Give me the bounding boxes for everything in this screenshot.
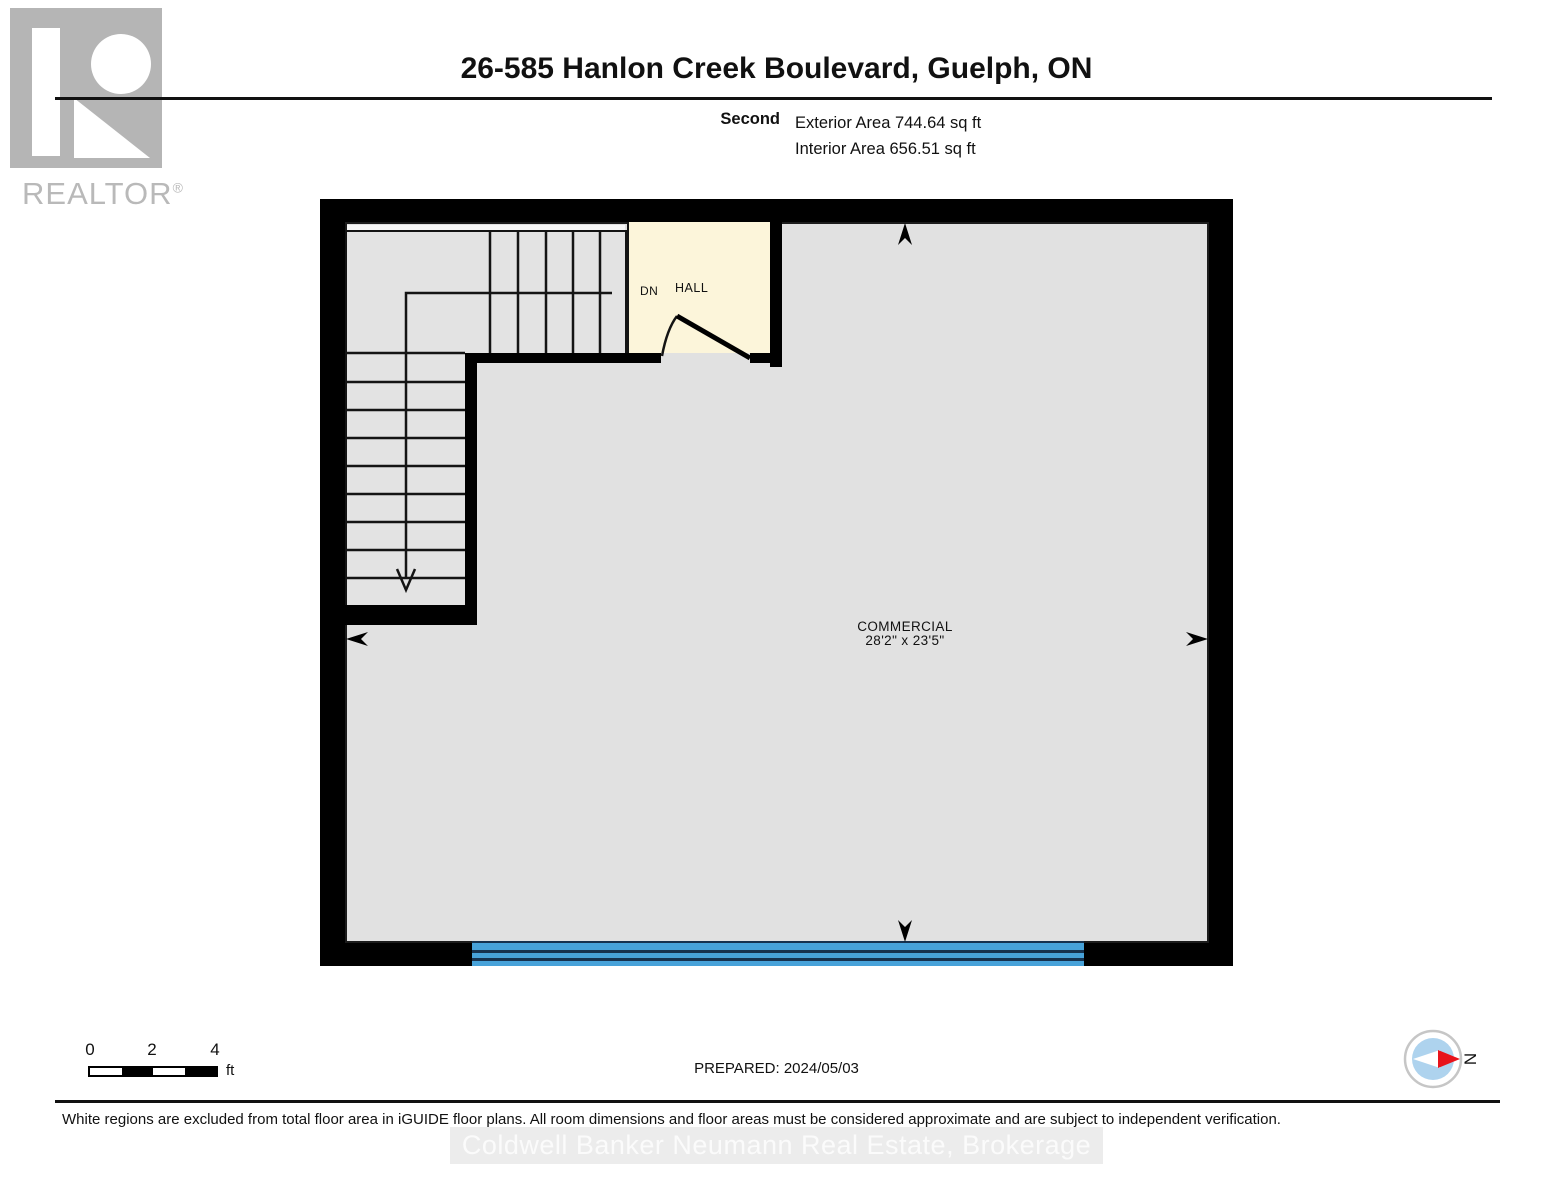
plan-linework	[320, 199, 1233, 966]
stair-direction-arrow	[397, 293, 612, 590]
prepared-date: PREPARED: 2024/05/03	[0, 1060, 1553, 1077]
floor-stats: Second Exterior Area 744.64 sq ft Interi…	[620, 110, 981, 162]
arrow-right	[1186, 632, 1208, 646]
disclaimer-text: White regions are excluded from total fl…	[62, 1111, 1281, 1128]
page-title: 26-585 Hanlon Creek Boulevard, Guelph, O…	[0, 52, 1553, 86]
floor-name: Second	[620, 110, 780, 129]
compass-north-label: N	[1461, 1053, 1480, 1065]
scale-tick-4: 4	[205, 1040, 225, 1060]
exterior-area: Exterior Area 744.64 sq ft	[795, 110, 981, 136]
floor-plan: DN HALL COMMERCIAL 28'2" x 23'5"	[320, 199, 1233, 966]
arrow-up	[898, 223, 912, 245]
realtor-r-icon	[10, 8, 162, 168]
arrow-left	[346, 632, 368, 646]
compass: N	[1403, 1028, 1485, 1092]
door	[662, 316, 750, 358]
registered-mark: ®	[173, 180, 184, 196]
scale-tick-0: 0	[80, 1040, 100, 1060]
realtor-wordmark: REALTOR®	[22, 176, 184, 212]
scale-tick-labels: 0 2 4	[80, 1040, 240, 1060]
scale-tick-2: 2	[142, 1040, 162, 1060]
arrow-down	[898, 920, 912, 942]
brokerage-watermark: Coldwell Banker Neumann Real Estate, Bro…	[0, 1127, 1553, 1164]
realtor-logo: REALTOR®	[10, 8, 170, 208]
header-divider	[55, 97, 1492, 100]
floor-plan-page: { "header": { "logo_word": "REALTOR", "l…	[0, 0, 1553, 1200]
interior-area: Interior Area 656.51 sq ft	[795, 136, 981, 162]
footer-divider	[55, 1100, 1500, 1103]
measurement-arrows	[346, 223, 1208, 942]
compass-icon: N	[1403, 1028, 1485, 1092]
